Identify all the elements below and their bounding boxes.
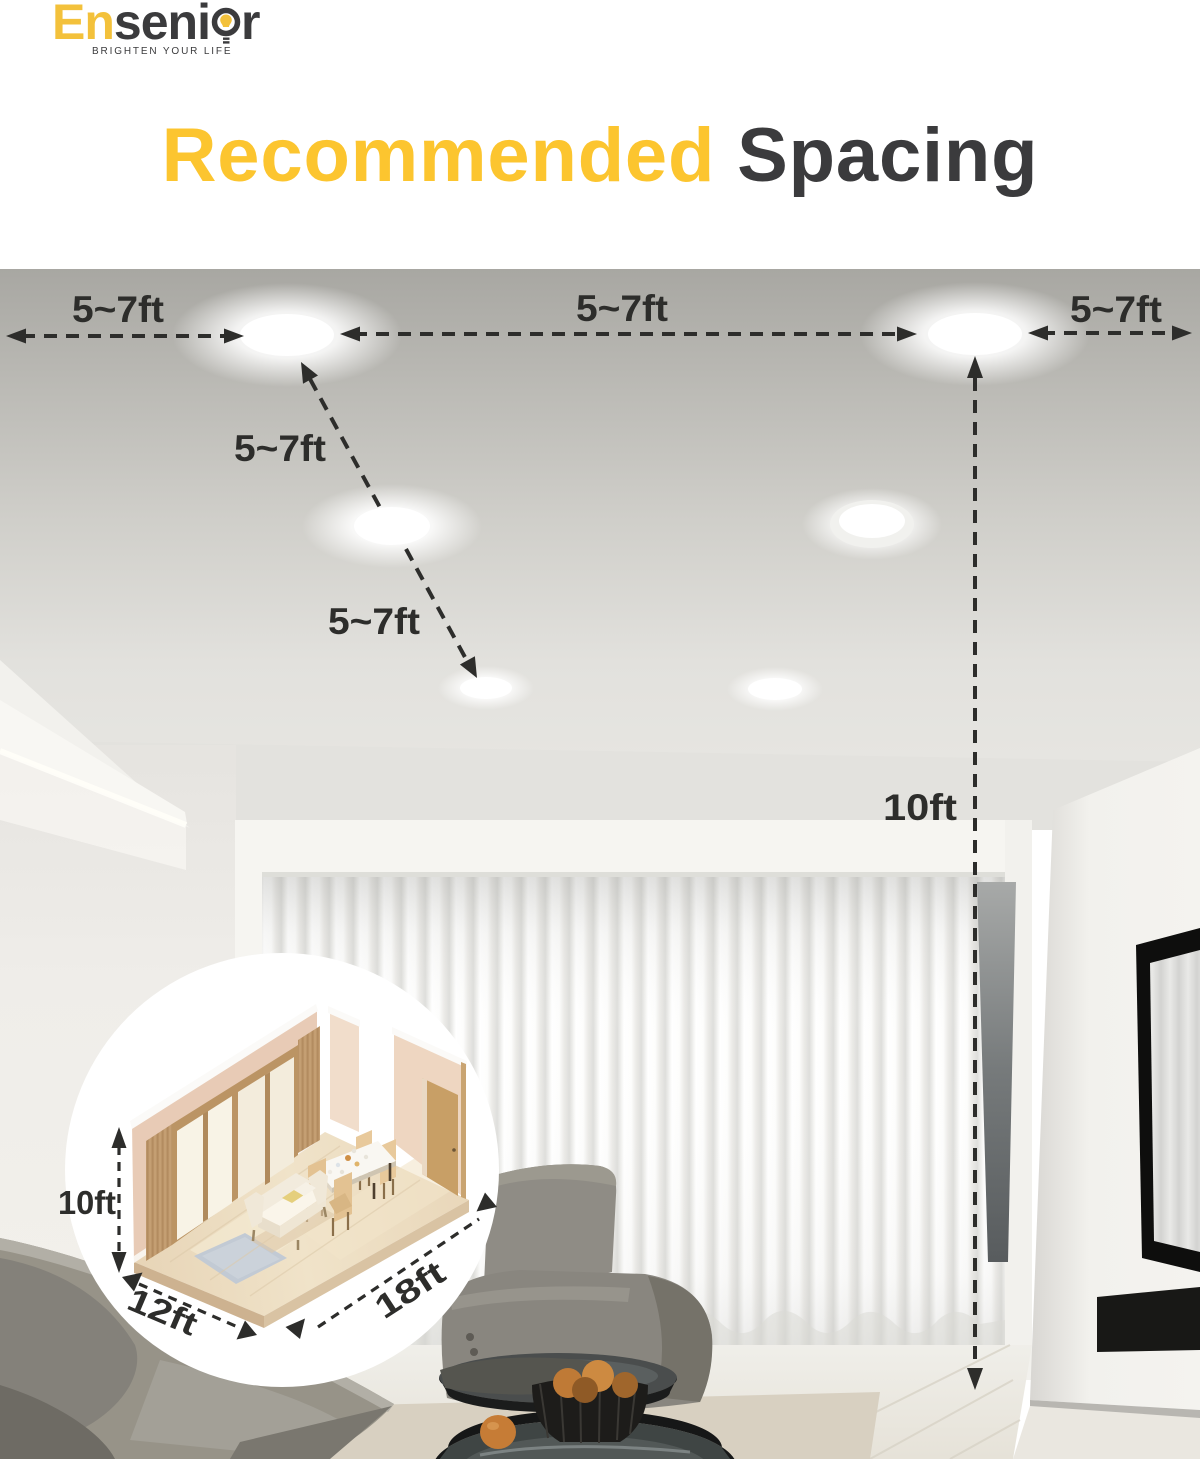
svg-text:10ft: 10ft (883, 787, 957, 828)
svg-text:10ft: 10ft (58, 1184, 116, 1221)
svg-text:5~7ft: 5~7ft (72, 289, 164, 330)
svg-text:5~7ft: 5~7ft (576, 288, 668, 329)
svg-text:5~7ft: 5~7ft (1070, 289, 1162, 330)
svg-text:5~7ft: 5~7ft (328, 601, 420, 642)
svg-text:5~7ft: 5~7ft (234, 428, 326, 469)
